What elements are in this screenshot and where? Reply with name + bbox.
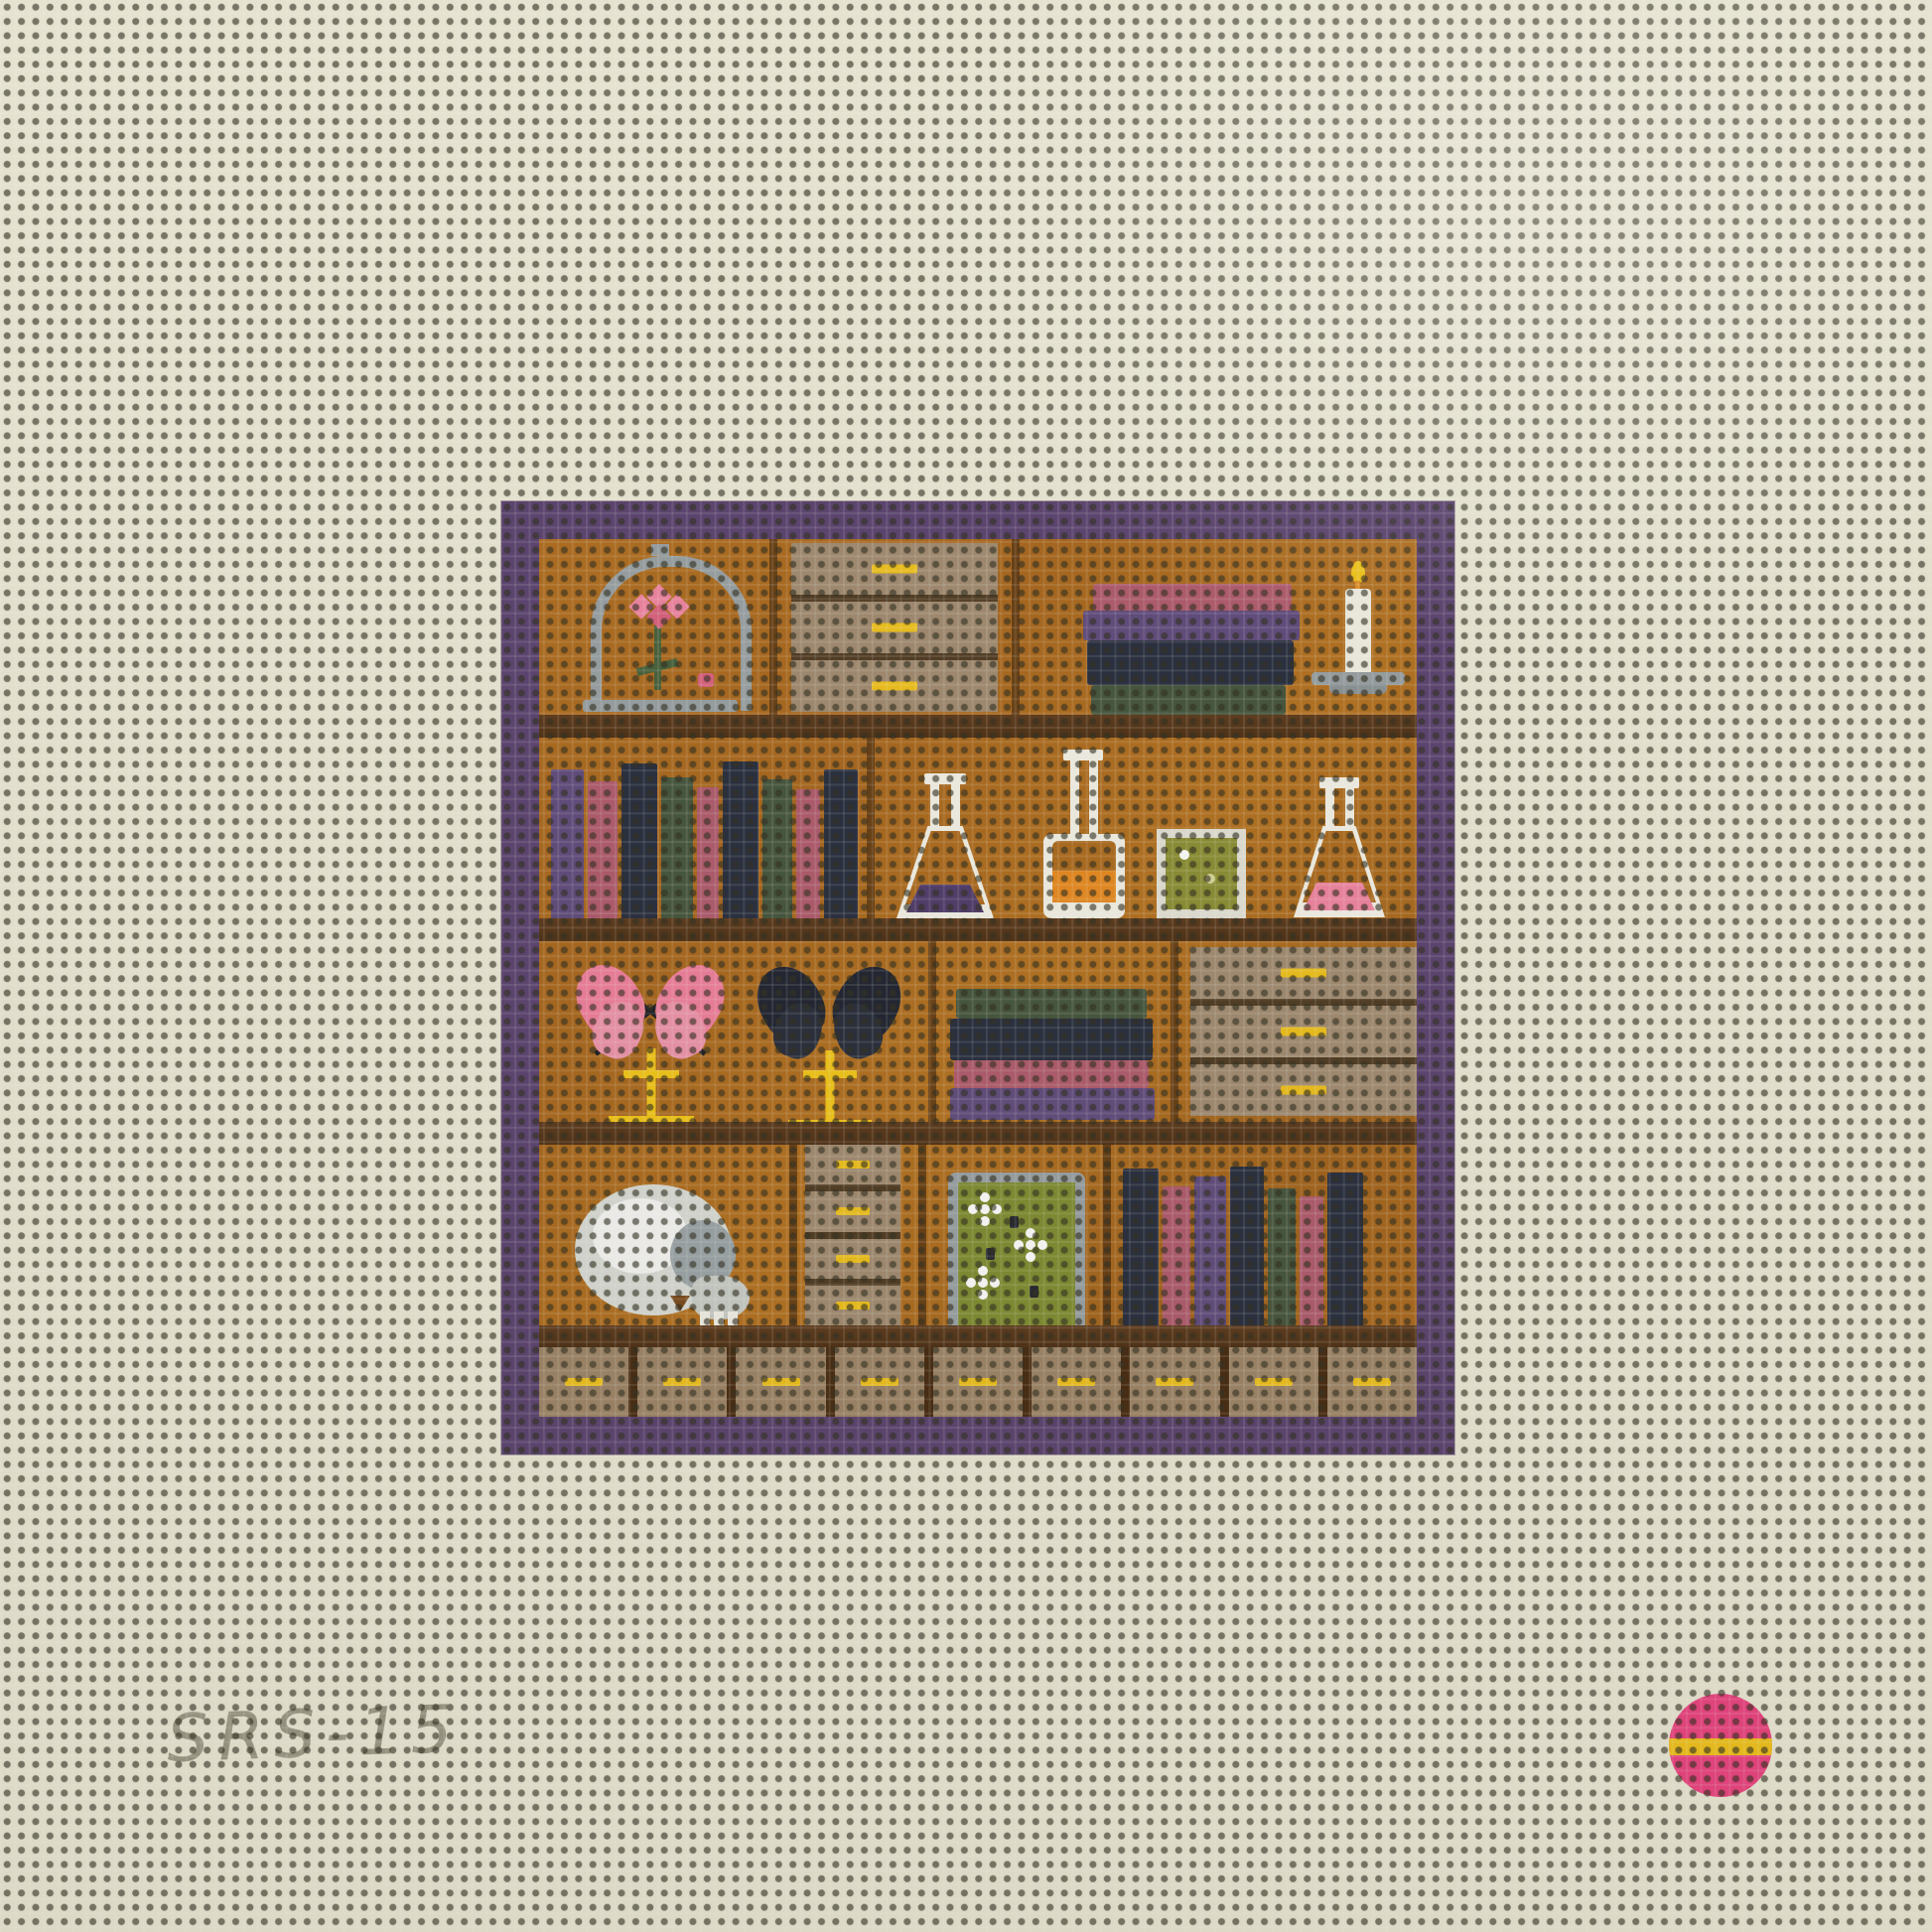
book: [824, 769, 858, 918]
drawer-handle: [836, 1302, 870, 1310]
book: [1268, 1188, 1296, 1325]
drawer-handle: [663, 1378, 701, 1386]
book: [1123, 1169, 1159, 1325]
drawer-handle: [836, 1255, 870, 1263]
shelf-divider: [867, 738, 875, 918]
flower-bud: [698, 673, 714, 687]
drawer-handle: [872, 682, 917, 691]
book: [1083, 611, 1300, 640]
shelf-board: [539, 918, 1417, 941]
book: [551, 769, 584, 918]
drawer-handle: [565, 1378, 603, 1386]
catalog-drawer: [1229, 1347, 1318, 1417]
drawer-handle: [762, 1378, 800, 1386]
book: [1087, 640, 1294, 685]
shelf-divider: [769, 539, 777, 715]
shelf-row-1: [539, 539, 1417, 715]
book: [1163, 1186, 1190, 1325]
catalog-drawer: [637, 1347, 727, 1417]
book: [950, 1088, 1155, 1120]
catalog-drawer: [835, 1347, 924, 1417]
book-stack: [1083, 584, 1300, 715]
cloche-flower: [626, 588, 690, 627]
drawer-handle: [1156, 1378, 1193, 1386]
shelf-divider: [789, 1145, 797, 1325]
book: [621, 763, 657, 918]
shelf-divider: [918, 1145, 926, 1325]
card-catalog-row: [539, 1347, 1417, 1417]
catalog-drawer: [933, 1347, 1023, 1417]
flower-stem: [654, 625, 661, 690]
shelf-divider: [1171, 941, 1178, 1122]
shelf-board: [539, 1325, 1417, 1347]
book: [723, 761, 759, 918]
drawer-handle: [1057, 1378, 1095, 1386]
book: [1091, 685, 1286, 715]
drawer-unit: [1190, 947, 1417, 1116]
skull: [575, 1184, 763, 1325]
drawer-handle: [959, 1378, 997, 1386]
shelf-row-3: [539, 941, 1417, 1122]
book: [1300, 1196, 1323, 1325]
drawer: [805, 1286, 900, 1325]
book: [1327, 1173, 1363, 1325]
book: [1194, 1176, 1226, 1325]
shelf-row-2: [539, 738, 1417, 918]
drawer: [791, 543, 998, 595]
book-stack: [950, 989, 1155, 1120]
drawer-handle: [1353, 1378, 1391, 1386]
vertical-books: [551, 738, 858, 918]
price-dot-stripe: [1669, 1738, 1772, 1755]
needlepoint-canvas-photo: SRS-15: [0, 0, 1932, 1932]
bookshelf-background: [539, 539, 1417, 1417]
drawer-handle: [836, 1161, 870, 1169]
moth-black-specimen: [746, 953, 914, 1132]
price-dot-sticker: [1669, 1694, 1772, 1797]
book: [1093, 584, 1292, 611]
candle-flame: [1351, 561, 1365, 583]
shelf-row-4: [539, 1145, 1417, 1325]
drawer: [791, 660, 998, 712]
specimen-jar: [1157, 829, 1246, 918]
drawer-handle: [1281, 1028, 1326, 1036]
specimen-stand: [567, 1048, 736, 1130]
drawer-handle: [1281, 969, 1326, 978]
book: [588, 781, 618, 918]
drawer: [1190, 947, 1417, 999]
candle-body: [1345, 589, 1371, 674]
drawer-handle: [1255, 1378, 1293, 1386]
drawer: [1190, 1006, 1417, 1057]
vertical-books: [1123, 1145, 1363, 1325]
book: [1230, 1167, 1264, 1325]
book: [796, 789, 820, 918]
book: [950, 1019, 1153, 1060]
drawer-handle: [872, 565, 917, 574]
drawer: [805, 1239, 900, 1279]
drawer: [791, 602, 998, 653]
drawer-unit: [791, 543, 998, 712]
painted-design: [501, 501, 1454, 1454]
herb-jar: [948, 1173, 1085, 1341]
catalog-drawer: [1130, 1347, 1219, 1417]
shelf-divider: [1103, 1145, 1111, 1325]
drawer: [1190, 1064, 1417, 1116]
catalog-drawer: [736, 1347, 825, 1417]
drawer: [805, 1145, 900, 1184]
catalog-drawer: [1327, 1347, 1417, 1417]
drawer: [805, 1191, 900, 1231]
drawer-handle: [861, 1378, 898, 1386]
shelf-board: [539, 715, 1417, 738]
catalog-drawer: [539, 1347, 628, 1417]
cloche-base: [583, 700, 738, 712]
shelf-divider: [928, 941, 936, 1122]
product-code: SRS-15: [166, 1691, 464, 1777]
book: [697, 787, 719, 918]
moth-pink-specimen: [567, 949, 736, 1128]
catalog-drawer: [1032, 1347, 1121, 1417]
book: [661, 777, 693, 918]
book: [956, 989, 1147, 1019]
shelf-divider: [1012, 539, 1020, 715]
drawer-handle: [1281, 1086, 1326, 1095]
book: [762, 779, 792, 918]
cloche-dome: [591, 556, 752, 711]
shelf-board: [539, 1122, 1417, 1145]
small-drawer-stack: [805, 1145, 900, 1325]
candle-dish-foot: [1329, 684, 1387, 694]
drawer-handle: [872, 623, 917, 632]
cloche-knob: [651, 544, 669, 556]
book: [954, 1060, 1149, 1088]
drawer-handle: [836, 1207, 870, 1215]
